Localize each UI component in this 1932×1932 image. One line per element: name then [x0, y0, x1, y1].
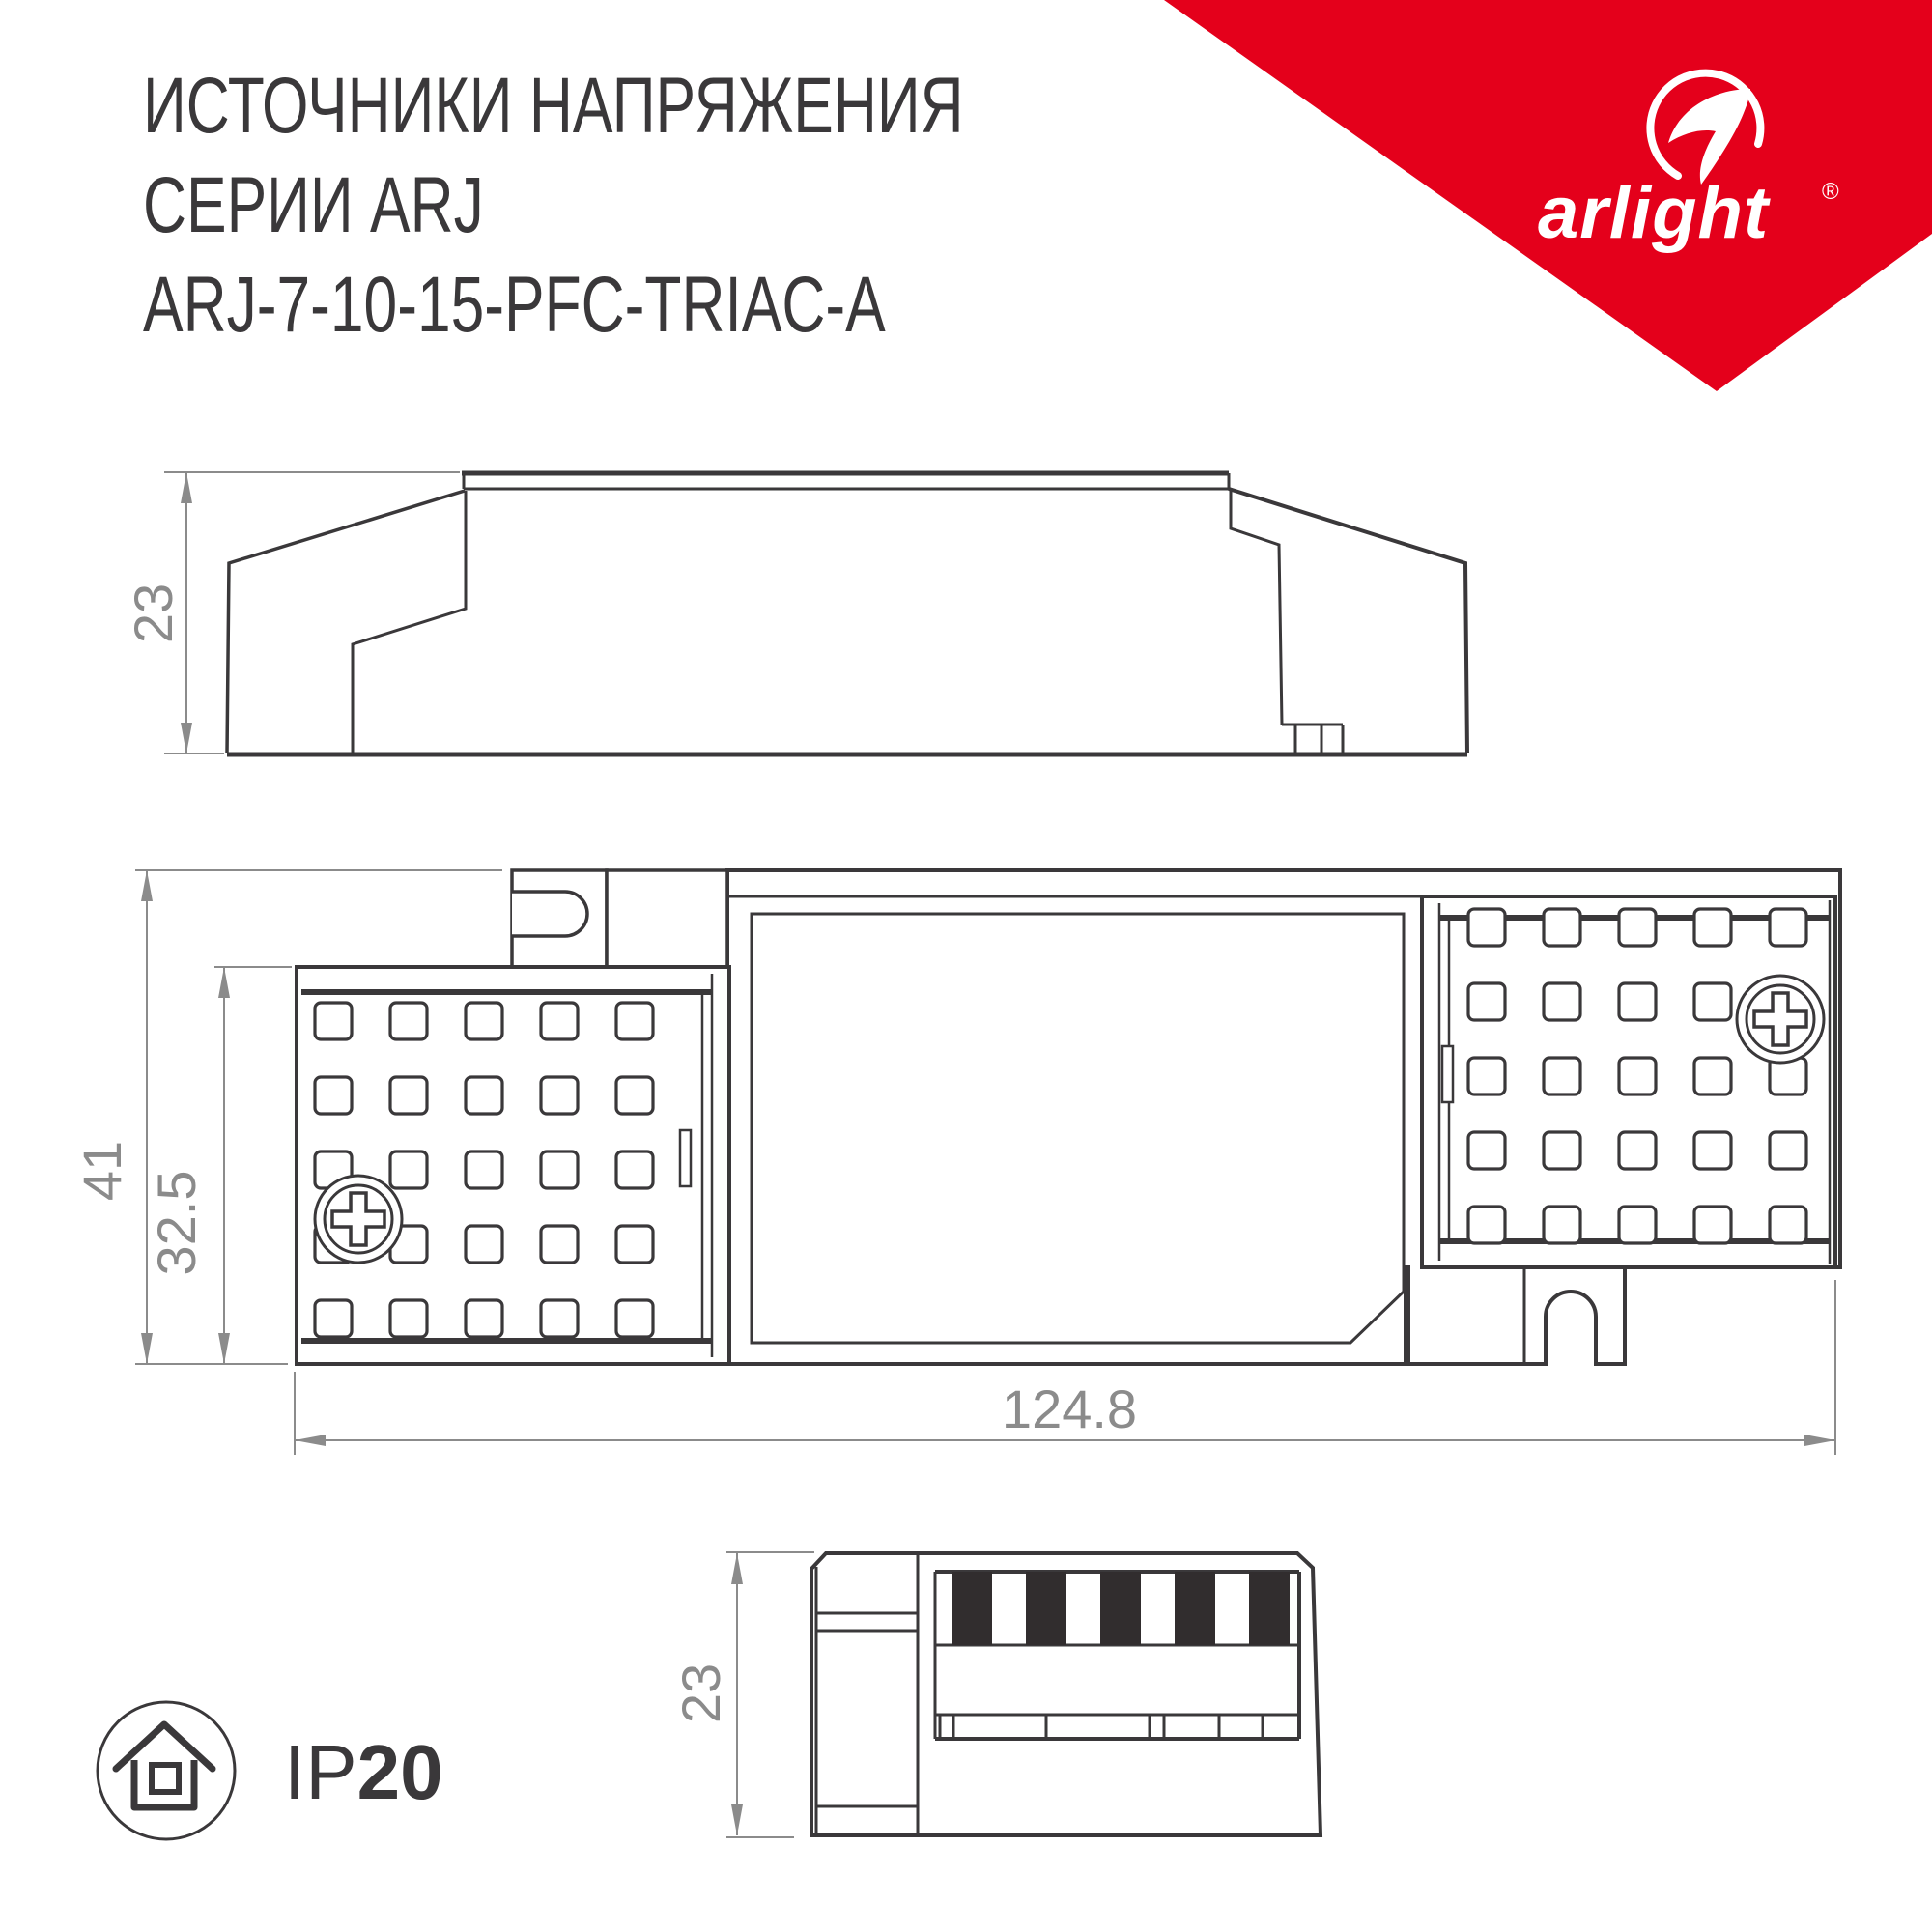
dim-label-top-height: 41 [71, 1141, 132, 1201]
vent-hole [315, 1003, 352, 1039]
vent-hole [315, 1300, 352, 1337]
dim-label-length: 124.8 [1002, 1378, 1137, 1439]
vent-hole [466, 1226, 502, 1263]
vent-hole [1619, 909, 1656, 946]
vent-hole [1468, 1132, 1505, 1169]
dim-ext-lines [164, 472, 460, 753]
vent-hole [390, 1151, 427, 1188]
vent-hole [1468, 909, 1505, 946]
vent-hole [616, 1003, 653, 1039]
u-slot-mounting-tab [512, 892, 587, 936]
vent-hole [1468, 1058, 1505, 1094]
ip-rating-text: IP20 [284, 1729, 443, 1815]
top-view: 41 32.5 124.8 [71, 870, 1840, 1455]
vent-hole [1770, 1132, 1806, 1169]
side-right-step [1231, 489, 1282, 724]
vent-hole [541, 1226, 578, 1263]
vent-hole [616, 1226, 653, 1263]
side-left-step [353, 491, 466, 753]
vent-hole [616, 1151, 653, 1188]
vent-hole [466, 1300, 502, 1337]
phillips-screw-icon [315, 1176, 402, 1263]
vent-hole [1694, 1132, 1731, 1169]
vent-hole [1619, 1132, 1656, 1169]
dim-label-side-height: 23 [123, 583, 184, 643]
vent-hole [616, 1300, 653, 1337]
side-right-profile [1229, 489, 1467, 753]
wire-slot [1026, 1572, 1066, 1645]
brand-corner: arlight ® [1164, 0, 1932, 391]
ip-rating-badge: IP20 [98, 1702, 443, 1839]
vent-hole [1544, 983, 1580, 1020]
vent-hole [1468, 983, 1505, 1020]
vent-hole [315, 1077, 352, 1114]
registered-mark-icon: ® [1822, 179, 1839, 205]
vent-hole [541, 1151, 578, 1188]
house-in-circle-icon [98, 1702, 235, 1839]
vent-hole [1770, 1207, 1806, 1243]
vent-hole [1694, 909, 1731, 946]
vent-hole [1619, 1207, 1656, 1243]
end-view: 23 [670, 1552, 1321, 1837]
vent-hole [1544, 1132, 1580, 1169]
side-left-profile [227, 491, 465, 753]
left-cover-latch [680, 1130, 691, 1186]
vent-hole [616, 1077, 653, 1114]
vent-hole [390, 1003, 427, 1039]
vent-hole [466, 1003, 502, 1039]
vent-hole [1619, 983, 1656, 1020]
dim-label-end-height: 23 [670, 1663, 731, 1723]
side-view: 23 [123, 472, 1467, 754]
vent-hole [466, 1151, 502, 1188]
central-window [752, 914, 1404, 1343]
vent-hole [1694, 1207, 1731, 1243]
vent-hole [1694, 983, 1731, 1020]
vent-hole [1619, 1058, 1656, 1094]
vent-hole [541, 1003, 578, 1039]
left-terminal-cover [297, 967, 729, 1364]
vent-hole [541, 1077, 578, 1114]
vent-hole [1694, 1058, 1731, 1094]
vent-hole [1544, 909, 1580, 946]
vent-hole [1544, 1058, 1580, 1094]
wire-slot [952, 1572, 992, 1645]
tab-platform [607, 870, 727, 967]
side-terminal-feet [1282, 724, 1343, 753]
phillips-screw-icon [1737, 976, 1824, 1063]
wire-slot [1249, 1572, 1290, 1645]
vent-hole [390, 1077, 427, 1114]
datasheet-page: ИСТОЧНИКИ НАПРЯЖЕНИЯ СЕРИИ ARJ ARJ-7-10-… [0, 0, 1932, 1932]
ip-prefix: IP [284, 1729, 357, 1815]
dim-ext-lines [726, 1552, 814, 1837]
right-cover-latch [1442, 1046, 1453, 1102]
vent-hole [466, 1077, 502, 1114]
vent-hole [541, 1300, 578, 1337]
vent-hole [1544, 1207, 1580, 1243]
dim-label-cover-height: 32.5 [146, 1171, 207, 1276]
vent-hole [390, 1300, 427, 1337]
technical-drawing: arlight ® 23 [0, 0, 1932, 1932]
wire-slot [1100, 1572, 1141, 1645]
vent-hole [1468, 1207, 1505, 1243]
right-terminal-cover [1422, 896, 1835, 1267]
ip-value: 20 [357, 1729, 443, 1815]
vent-hole [1770, 909, 1806, 946]
wire-slot [1175, 1572, 1215, 1645]
left-cover-outline [297, 967, 729, 1364]
brand-wordmark: arlight [1538, 172, 1771, 254]
